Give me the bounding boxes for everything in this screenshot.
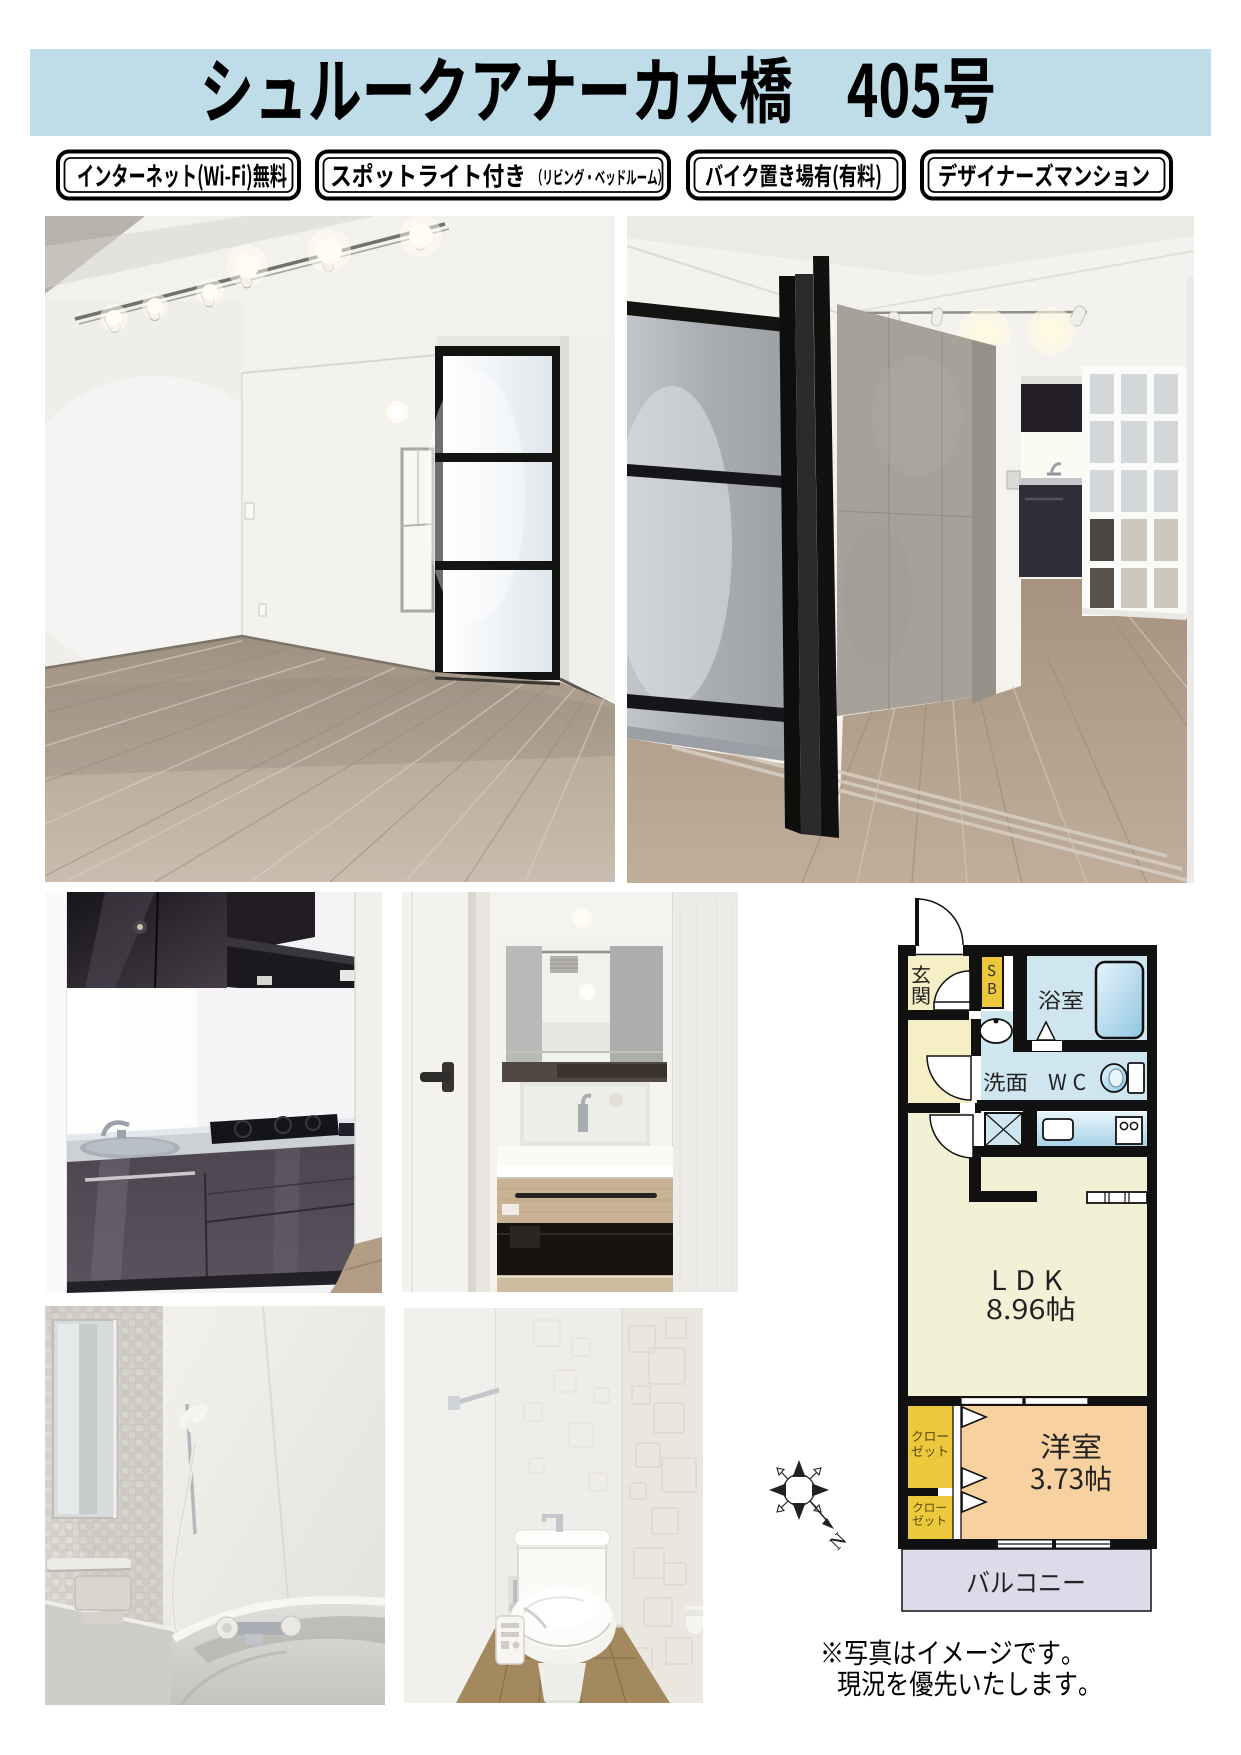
svg-text:N: N: [825, 1529, 851, 1555]
